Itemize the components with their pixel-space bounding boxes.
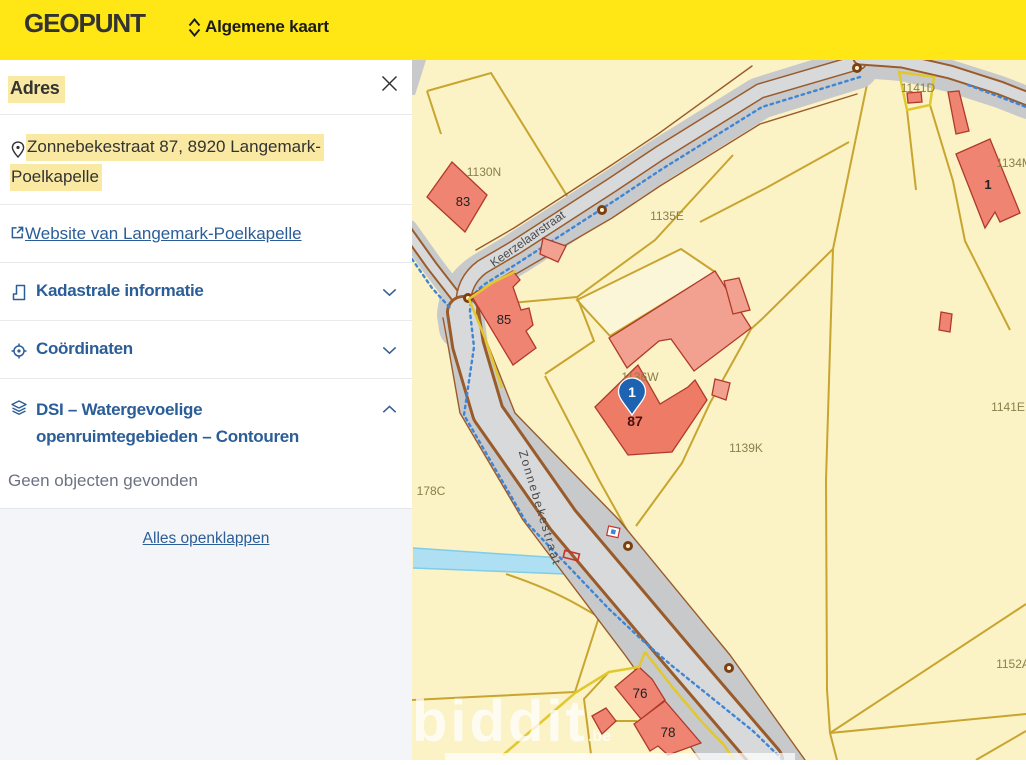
svg-text:1152A: 1152A (996, 657, 1026, 671)
svg-text:1141E: 1141E (991, 400, 1025, 414)
svg-text:1139K: 1139K (729, 441, 763, 455)
svg-text:78: 78 (660, 725, 675, 740)
svg-text:178C: 178C (417, 484, 446, 498)
svg-text:1134M: 1134M (996, 156, 1026, 170)
svg-text:1130N: 1130N (467, 165, 501, 179)
svg-text:1: 1 (628, 384, 636, 400)
svg-text:1135E: 1135E (650, 209, 684, 223)
svg-text:87: 87 (627, 413, 643, 429)
svg-text:76: 76 (632, 686, 647, 701)
svg-text:83: 83 (456, 194, 470, 209)
svg-text:85: 85 (497, 312, 511, 327)
svg-text:1141D: 1141D (901, 81, 936, 95)
svg-text:1: 1 (984, 177, 991, 192)
